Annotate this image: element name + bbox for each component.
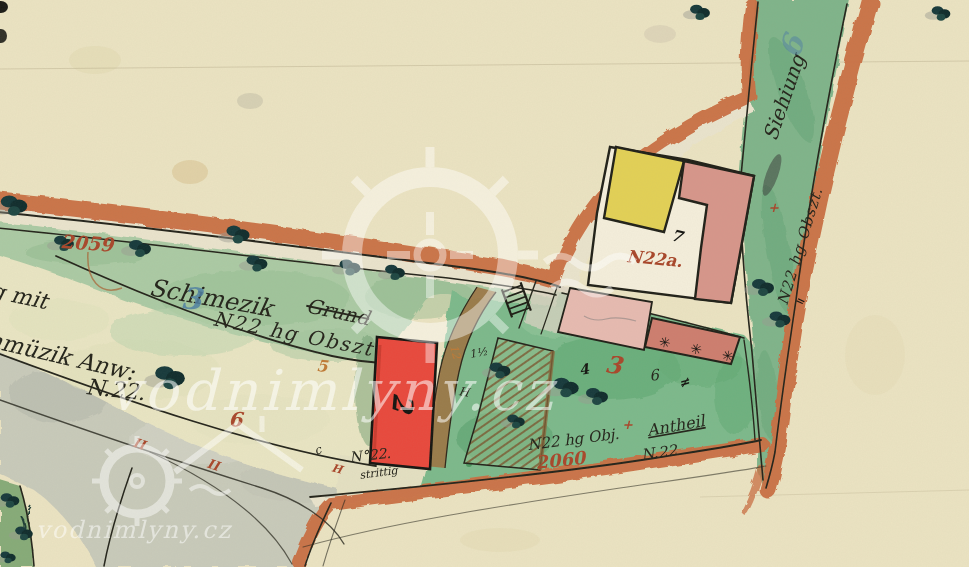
watermark-text-large: vodnimlyny.cz (108, 358, 558, 423)
historical-map-svg: 2059 Schimezik Grund 3 N22 hg Obszt 5 tt… (0, 0, 969, 567)
map-scan: 2059 Schimezik Grund 3 N22 hg Obszt 5 tt… (0, 0, 969, 567)
watermark-text-small: vodnimlyny.cz (36, 516, 232, 544)
paper-grain (0, 0, 969, 567)
